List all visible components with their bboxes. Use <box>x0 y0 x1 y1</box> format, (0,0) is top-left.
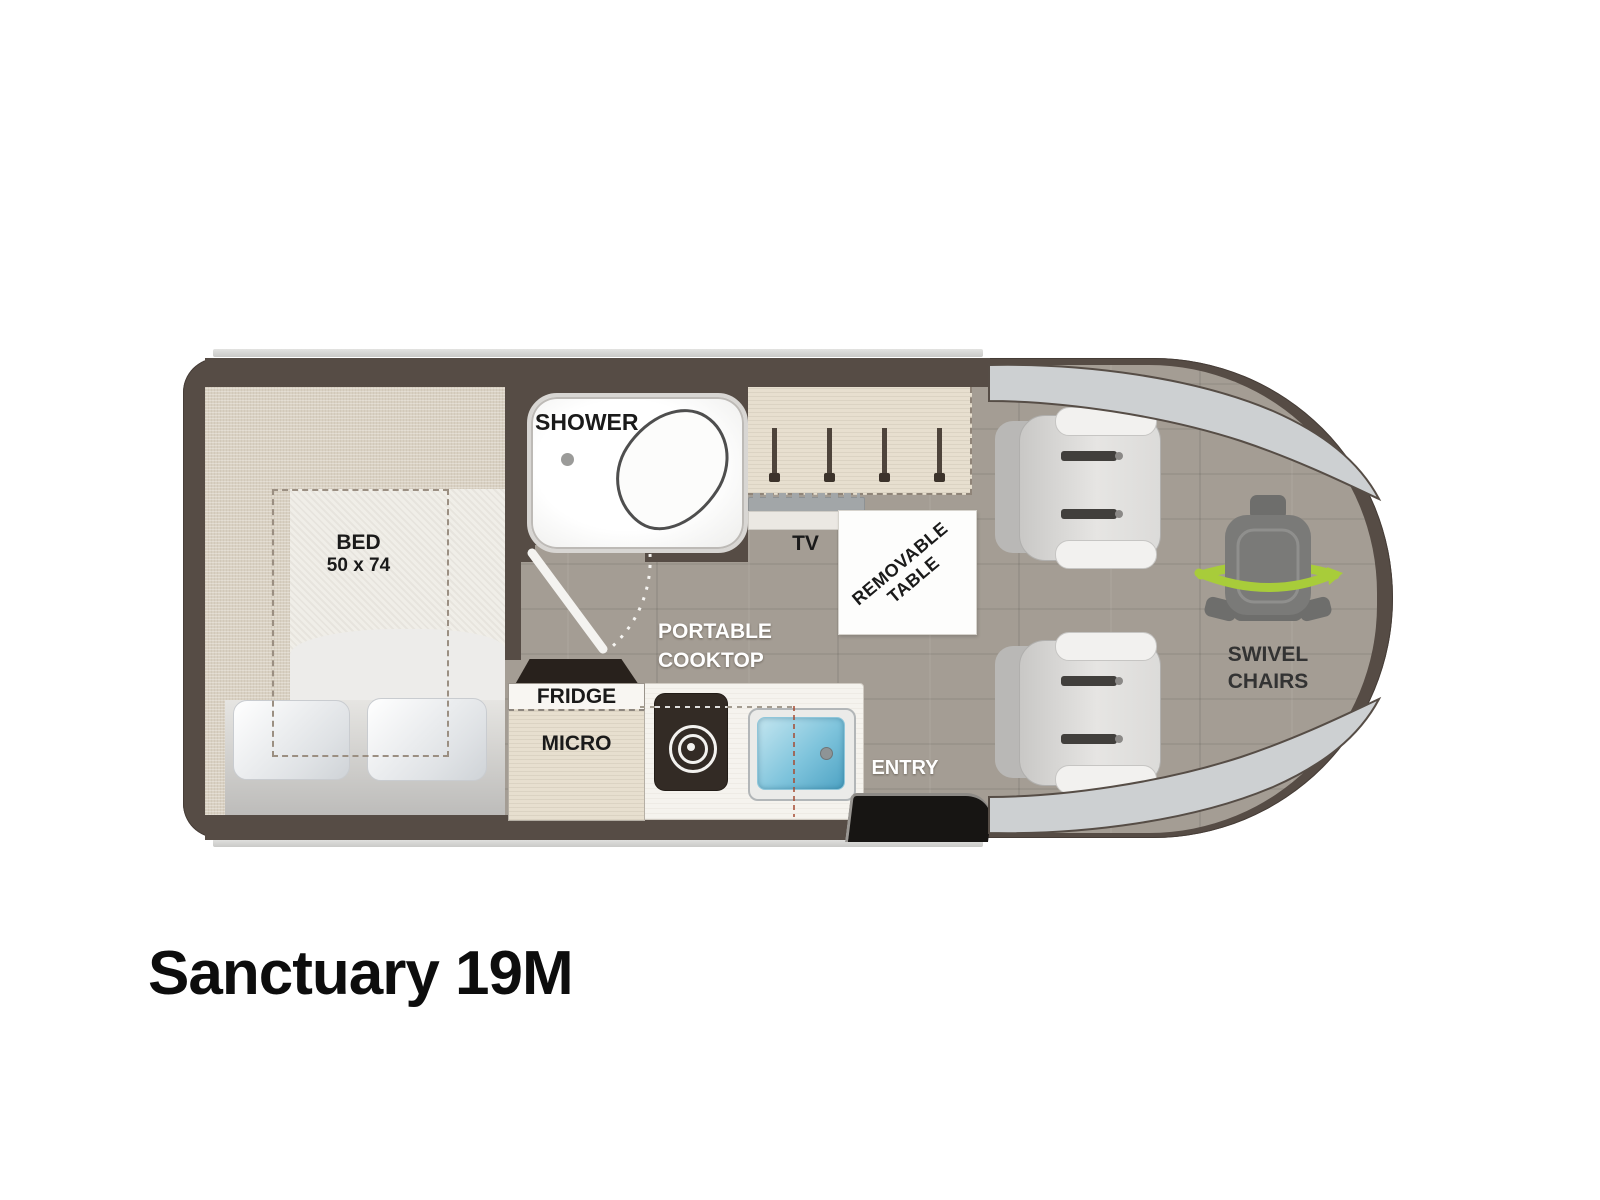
entry-label: ENTRY <box>855 757 955 780</box>
chair-rail <box>1061 734 1117 744</box>
portable-cooktop-label-line2: COOKTOP <box>658 646 772 675</box>
swivel-chairs-label-line1: SWIVEL <box>1193 641 1343 668</box>
bed-label-line1: BED <box>272 531 445 555</box>
sink-icon <box>748 708 856 801</box>
swivel-chairs-label-line2: CHAIRS <box>1193 668 1343 695</box>
portable-cooktop-label-line1: PORTABLE <box>658 617 772 646</box>
tv-label: TV <box>783 532 828 556</box>
shower-door-post <box>521 545 535 562</box>
swivel-chair-icon <box>1193 487 1343 637</box>
bed-label: BED 50 x 74 <box>272 531 445 577</box>
chair-armrest <box>1055 540 1157 569</box>
hanging-rod-icon <box>772 428 777 474</box>
burner-center <box>687 743 695 751</box>
floorplan-title: Sanctuary 19M <box>148 938 573 1009</box>
chair-armrest <box>1055 765 1157 794</box>
wall-top <box>205 358 990 387</box>
swivel-chairs-label: SWIVEL CHAIRS <box>1193 641 1343 695</box>
entry-step-icon <box>845 793 994 842</box>
tv-shelf <box>748 511 840 530</box>
floorplan-page: { "title": "Sanctuary 19M", "labels": { … <box>0 0 1600 1200</box>
swivel-arrowhead <box>1327 567 1343 585</box>
hanging-rod-icon <box>882 428 887 474</box>
floorplan: BED 50 x 74 SHOWER TV REMOVABLE TABLE PO… <box>183 349 1393 849</box>
bed-label-line2: 50 x 74 <box>272 555 445 577</box>
fridge-cabinet: FRIDGE <box>508 683 645 711</box>
captain-chair-icon <box>995 411 1167 563</box>
chair-rail <box>1061 676 1117 686</box>
wall-bedroom-divider <box>505 387 521 660</box>
chair-rail <box>1061 451 1117 461</box>
faucet-icon <box>820 747 833 760</box>
portable-cooktop <box>655 694 727 790</box>
removable-table-label: REMOVABLE TABLE <box>832 504 982 639</box>
captain-chair-icon <box>995 636 1167 788</box>
fridge-top-3d <box>508 659 643 685</box>
fridge-label: FRIDGE <box>537 685 616 708</box>
shower-drain-icon <box>561 453 574 466</box>
chair-armrest <box>1055 632 1157 661</box>
micro-label: MICRO <box>542 732 612 755</box>
chair-rail <box>1061 509 1117 519</box>
chair-armrest <box>1055 407 1157 436</box>
hanging-rod-icon <box>827 428 832 474</box>
roof-rail-top <box>213 349 983 357</box>
micro-cabinet: MICRO <box>508 709 645 821</box>
shower-label: SHOWER <box>535 409 639 436</box>
hanging-rod-icon <box>937 428 942 474</box>
removable-table: REMOVABLE TABLE <box>838 510 977 635</box>
portable-cooktop-label: PORTABLE COOKTOP <box>658 617 772 675</box>
bed-dimension-outline <box>272 489 449 757</box>
